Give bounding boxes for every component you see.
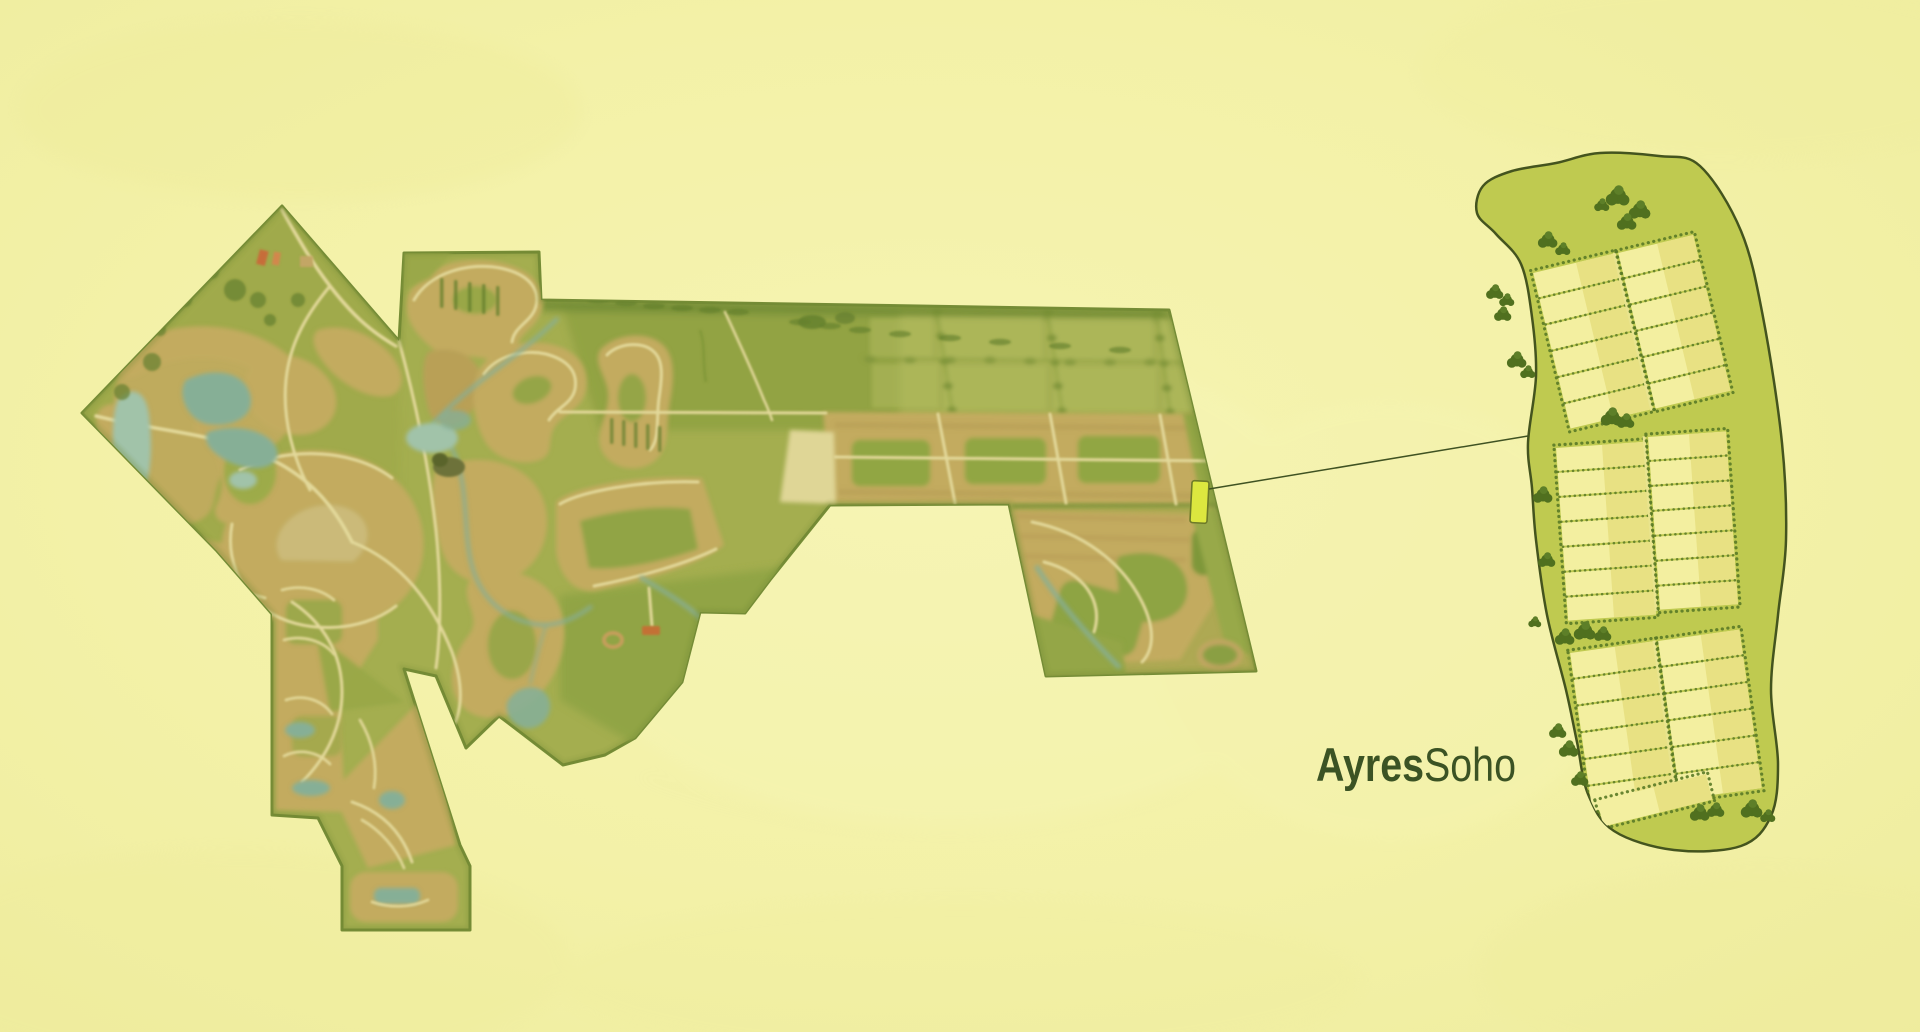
svg-text:AyresSoho: AyresSoho [1316, 738, 1516, 791]
